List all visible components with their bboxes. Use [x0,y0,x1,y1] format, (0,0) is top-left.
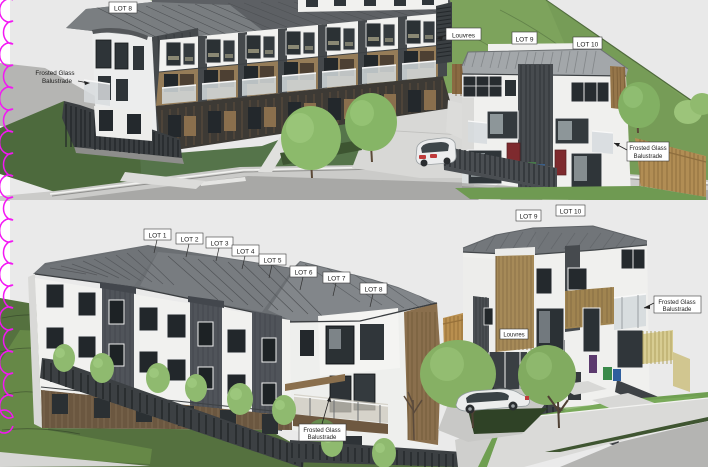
svg-text:LOT 8: LOT 8 [365,286,383,293]
svg-text:LOT 10: LOT 10 [560,208,582,215]
svg-text:Frosted Glass: Frosted Glass [303,428,340,434]
svg-text:Balustrade: Balustrade [42,78,73,85]
svg-text:LOT 10: LOT 10 [577,42,599,49]
svg-text:LOT 5: LOT 5 [264,257,282,264]
svg-text:LOT 7: LOT 7 [328,275,346,282]
svg-text:LOT 8: LOT 8 [114,6,132,13]
svg-text:Louvres: Louvres [452,33,476,40]
svg-text:LOT 9: LOT 9 [516,37,534,44]
svg-text:LOT 2: LOT 2 [181,236,199,243]
svg-text:Balustrade: Balustrade [634,154,663,160]
svg-text:Balustrade: Balustrade [663,307,692,313]
svg-text:Frosted Glass: Frosted Glass [629,146,666,152]
svg-text:LOT 1: LOT 1 [149,232,167,239]
svg-text:Frosted Glass: Frosted Glass [658,300,695,306]
svg-text:Balustrade: Balustrade [308,435,337,441]
svg-text:LOT 9: LOT 9 [520,213,538,220]
svg-text:Frosted Glass: Frosted Glass [35,70,74,77]
svg-text:LOT 4: LOT 4 [237,248,255,255]
svg-text:LOT 3: LOT 3 [211,240,229,247]
svg-text:LOT 6: LOT 6 [295,269,313,276]
svg-text:Louvres: Louvres [503,332,524,338]
